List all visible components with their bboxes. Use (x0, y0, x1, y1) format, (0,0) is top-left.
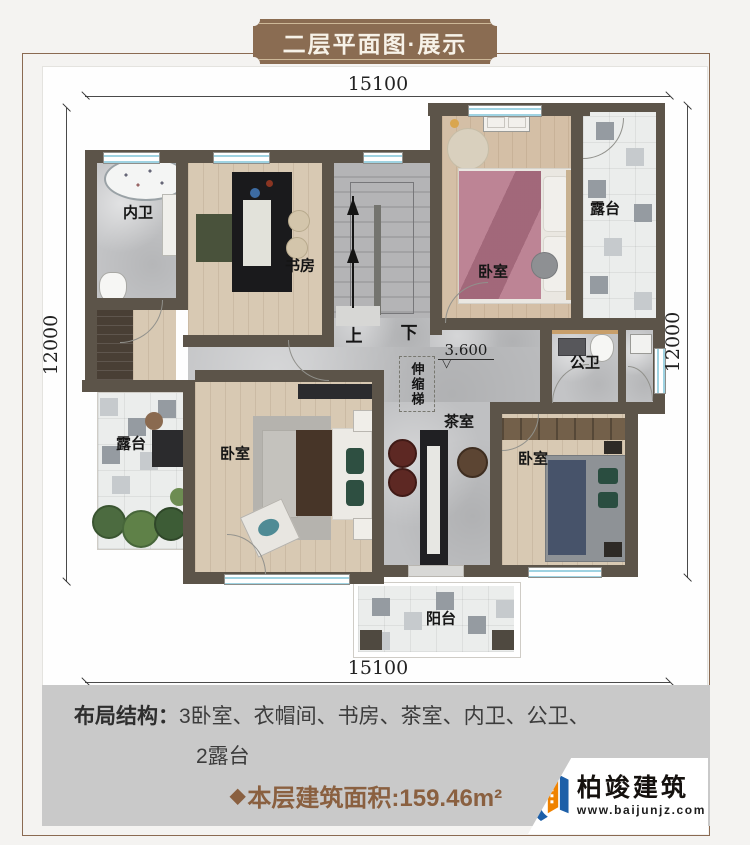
room-label-terrace-left: 露台 (116, 433, 146, 454)
wall-segment (372, 382, 384, 572)
balcony-corner-block (492, 630, 514, 650)
layout-structure-label: 布局结构： (74, 705, 179, 728)
tea-cabinet-panel (427, 446, 440, 554)
logo-text-block: 柏竣建筑 www.baijunjz.com (577, 775, 706, 817)
room-label-bedroom-left: 卧室 (220, 443, 250, 464)
furniture-desk-panel (243, 200, 271, 266)
bed-pillow-green (598, 468, 618, 484)
wall-segment (85, 150, 97, 392)
bed-pillow-green (346, 448, 364, 474)
dimension-right-value: 12000 (662, 312, 684, 372)
wall-segment (322, 150, 334, 335)
plant-icon (92, 505, 126, 539)
bed-sheet (332, 428, 372, 520)
balcony-threshold (408, 565, 464, 577)
wall-segment (540, 318, 665, 330)
wall-segment (82, 380, 195, 392)
room-label-terrace-right: 露台 (590, 198, 620, 219)
dimension-left-value: 12000 (40, 315, 62, 375)
furniture-rug-study (196, 214, 234, 262)
room-label-tea-room: 茶室 (444, 411, 474, 432)
dimension-bottom-value: 15100 (348, 657, 408, 679)
wall-segment (183, 380, 195, 584)
tile (468, 616, 486, 634)
layout-structure-line2: 2露台 (196, 740, 250, 770)
wall-segment (540, 318, 552, 414)
page-title: 二层平面图·展示 (283, 25, 468, 59)
dresser-drawer (508, 117, 526, 128)
logo-url: www.baijunjz.com (577, 803, 706, 817)
room-label-bedroom-right: 卧室 (518, 448, 548, 469)
stairs-down-label: 下 (401, 319, 418, 344)
armchair-cushion (255, 516, 282, 540)
furniture-tea-stool (388, 439, 417, 468)
dimension-line-right (687, 106, 688, 578)
furniture-stool (531, 252, 558, 279)
room-label-bedroom-top: 卧室 (478, 261, 508, 282)
room-label-public-bath: 公卫 (570, 352, 600, 373)
bed-pillow-green (346, 480, 364, 506)
dresser-drawer (487, 117, 505, 128)
stair-stringer (374, 205, 381, 315)
furniture-basin (630, 334, 652, 354)
stair-arrow-up-icon (347, 198, 359, 215)
wall-segment (583, 103, 665, 112)
tile (634, 292, 652, 310)
sofa-pillow (145, 412, 163, 430)
lamp-icon (450, 119, 459, 128)
tile (112, 476, 130, 494)
furniture-sofa (152, 430, 183, 467)
wall-segment (195, 370, 384, 382)
tile (404, 612, 422, 630)
wall-segment (384, 565, 408, 577)
dimension-line-left (66, 108, 67, 582)
tile (604, 238, 622, 256)
floorplan-page: 二层平面图·展示 (0, 0, 750, 845)
banner-notch (247, 13, 260, 26)
floor-area-line: ◆ 本层建筑面积:159.46m² (230, 778, 502, 813)
desk-item (250, 188, 260, 198)
stair-arrow-up-icon (347, 246, 359, 263)
wall-segment (656, 103, 665, 325)
furniture-nightstand (604, 542, 622, 557)
furniture-tea-chair (457, 447, 488, 478)
wall-segment (176, 150, 188, 310)
retractable-ladder-label: 伸缩梯 (408, 362, 427, 407)
tile (590, 276, 608, 294)
banner-notch (490, 13, 503, 26)
balcony-corner-block (360, 630, 382, 650)
furniture-tea-stool (388, 468, 417, 497)
tile (372, 598, 390, 616)
stairs-up-label: 上 (346, 322, 363, 347)
window (363, 152, 403, 164)
logo-name: 柏竣建筑 (577, 775, 689, 803)
furniture-nightstand (604, 441, 622, 454)
desk-item (266, 180, 273, 187)
wall-segment (430, 103, 442, 335)
bed-pillow-green (598, 492, 618, 508)
bed-duvet-brown (296, 430, 332, 516)
furniture-round-chair (447, 128, 489, 170)
tile (100, 398, 118, 416)
bed-duvet-navy (548, 460, 586, 555)
tile (634, 204, 652, 222)
dimension-line-bottom (85, 682, 670, 683)
room-label-inner-bath: 内卫 (123, 202, 153, 223)
room-label-balcony: 阳台 (426, 608, 456, 629)
layout-structure-items: 3卧室、衣帽间、书房、茶室、内卫、公卫、 (179, 705, 590, 728)
wall-segment (625, 414, 638, 577)
dimension-top-value: 15100 (348, 73, 408, 95)
tile (626, 148, 644, 166)
wall-segment (490, 402, 502, 565)
dimension-line-top (85, 96, 670, 97)
tile (588, 180, 606, 198)
title-banner: 二层平面图·展示 (253, 19, 497, 64)
window (528, 567, 602, 578)
window (103, 152, 160, 164)
room-label-study: 书房 (285, 255, 315, 276)
diamond-icon: ◆ (230, 783, 245, 808)
window (468, 105, 542, 117)
tile (496, 600, 514, 618)
layout-structure-line1: 布局结构：3卧室、衣帽间、书房、茶室、内卫、公卫、 (74, 700, 590, 730)
furniture-chair (288, 210, 310, 232)
retractable-ladder-box: 伸缩梯 (399, 356, 435, 412)
wall-segment (464, 565, 490, 577)
stair-rail (350, 182, 414, 314)
wall-segment (490, 402, 665, 414)
wall-segment (571, 103, 583, 330)
furniture-tv-stand (298, 384, 376, 399)
window (213, 152, 270, 164)
floor-area-text: 本层建筑面积:159.46m² (247, 778, 502, 813)
window (224, 574, 350, 585)
level-mark: 3.600 ▽ (438, 341, 494, 360)
level-triangle-icon: ▽ (442, 356, 451, 370)
